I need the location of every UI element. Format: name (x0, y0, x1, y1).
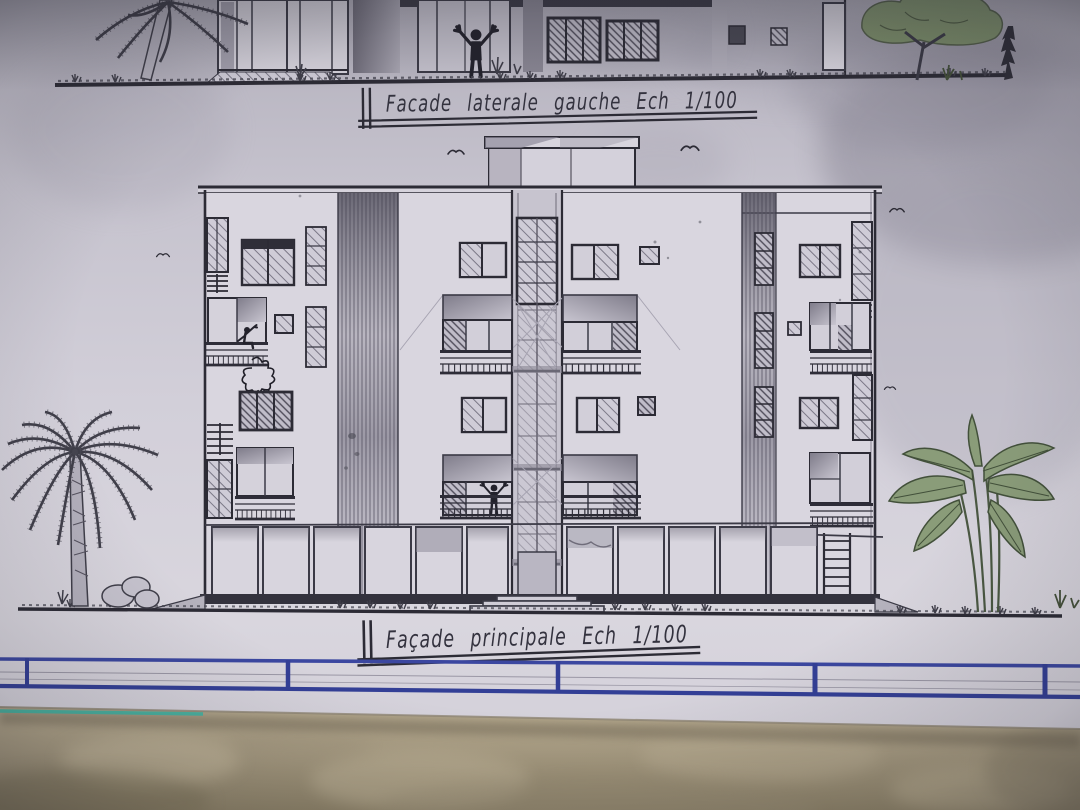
photo-of-architectural-drawing: Facade laterale gauche Ech 1/100 (0, 0, 1080, 810)
photo-vignette (0, 0, 1080, 810)
